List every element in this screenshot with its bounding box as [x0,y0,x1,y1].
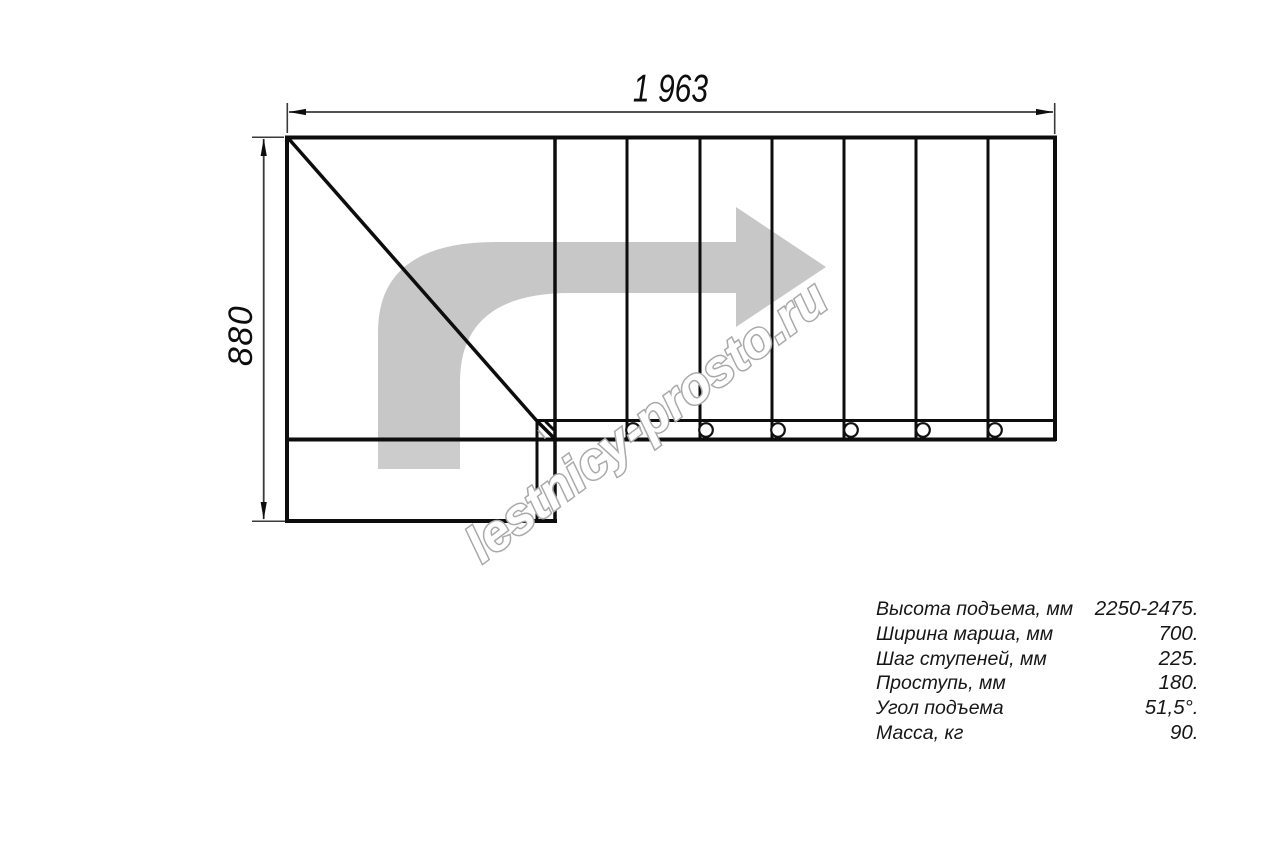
svg-text:90.: 90. [1170,721,1199,744]
svg-text:Масса, кг: Масса, кг [876,722,964,744]
svg-text:700.: 700. [1159,622,1199,645]
svg-text:880: 880 [222,305,260,366]
svg-text:Высота подъема, мм: Высота подъема, мм [876,598,1073,620]
svg-text:Угол подъема: Угол подъема [875,697,1004,719]
svg-text:Шаг ступеней, мм: Шаг ступеней, мм [876,648,1047,670]
svg-text:51,5°.: 51,5°. [1145,696,1199,719]
svg-text:1 963: 1 963 [633,68,708,110]
svg-text:Ширина марша, мм: Ширина марша, мм [876,623,1053,645]
svg-text:180.: 180. [1159,671,1199,694]
svg-text:225.: 225. [1158,647,1199,670]
svg-text:Проступь, мм: Проступь, мм [876,672,1006,694]
svg-text:2250-2475.: 2250-2475. [1094,597,1199,620]
